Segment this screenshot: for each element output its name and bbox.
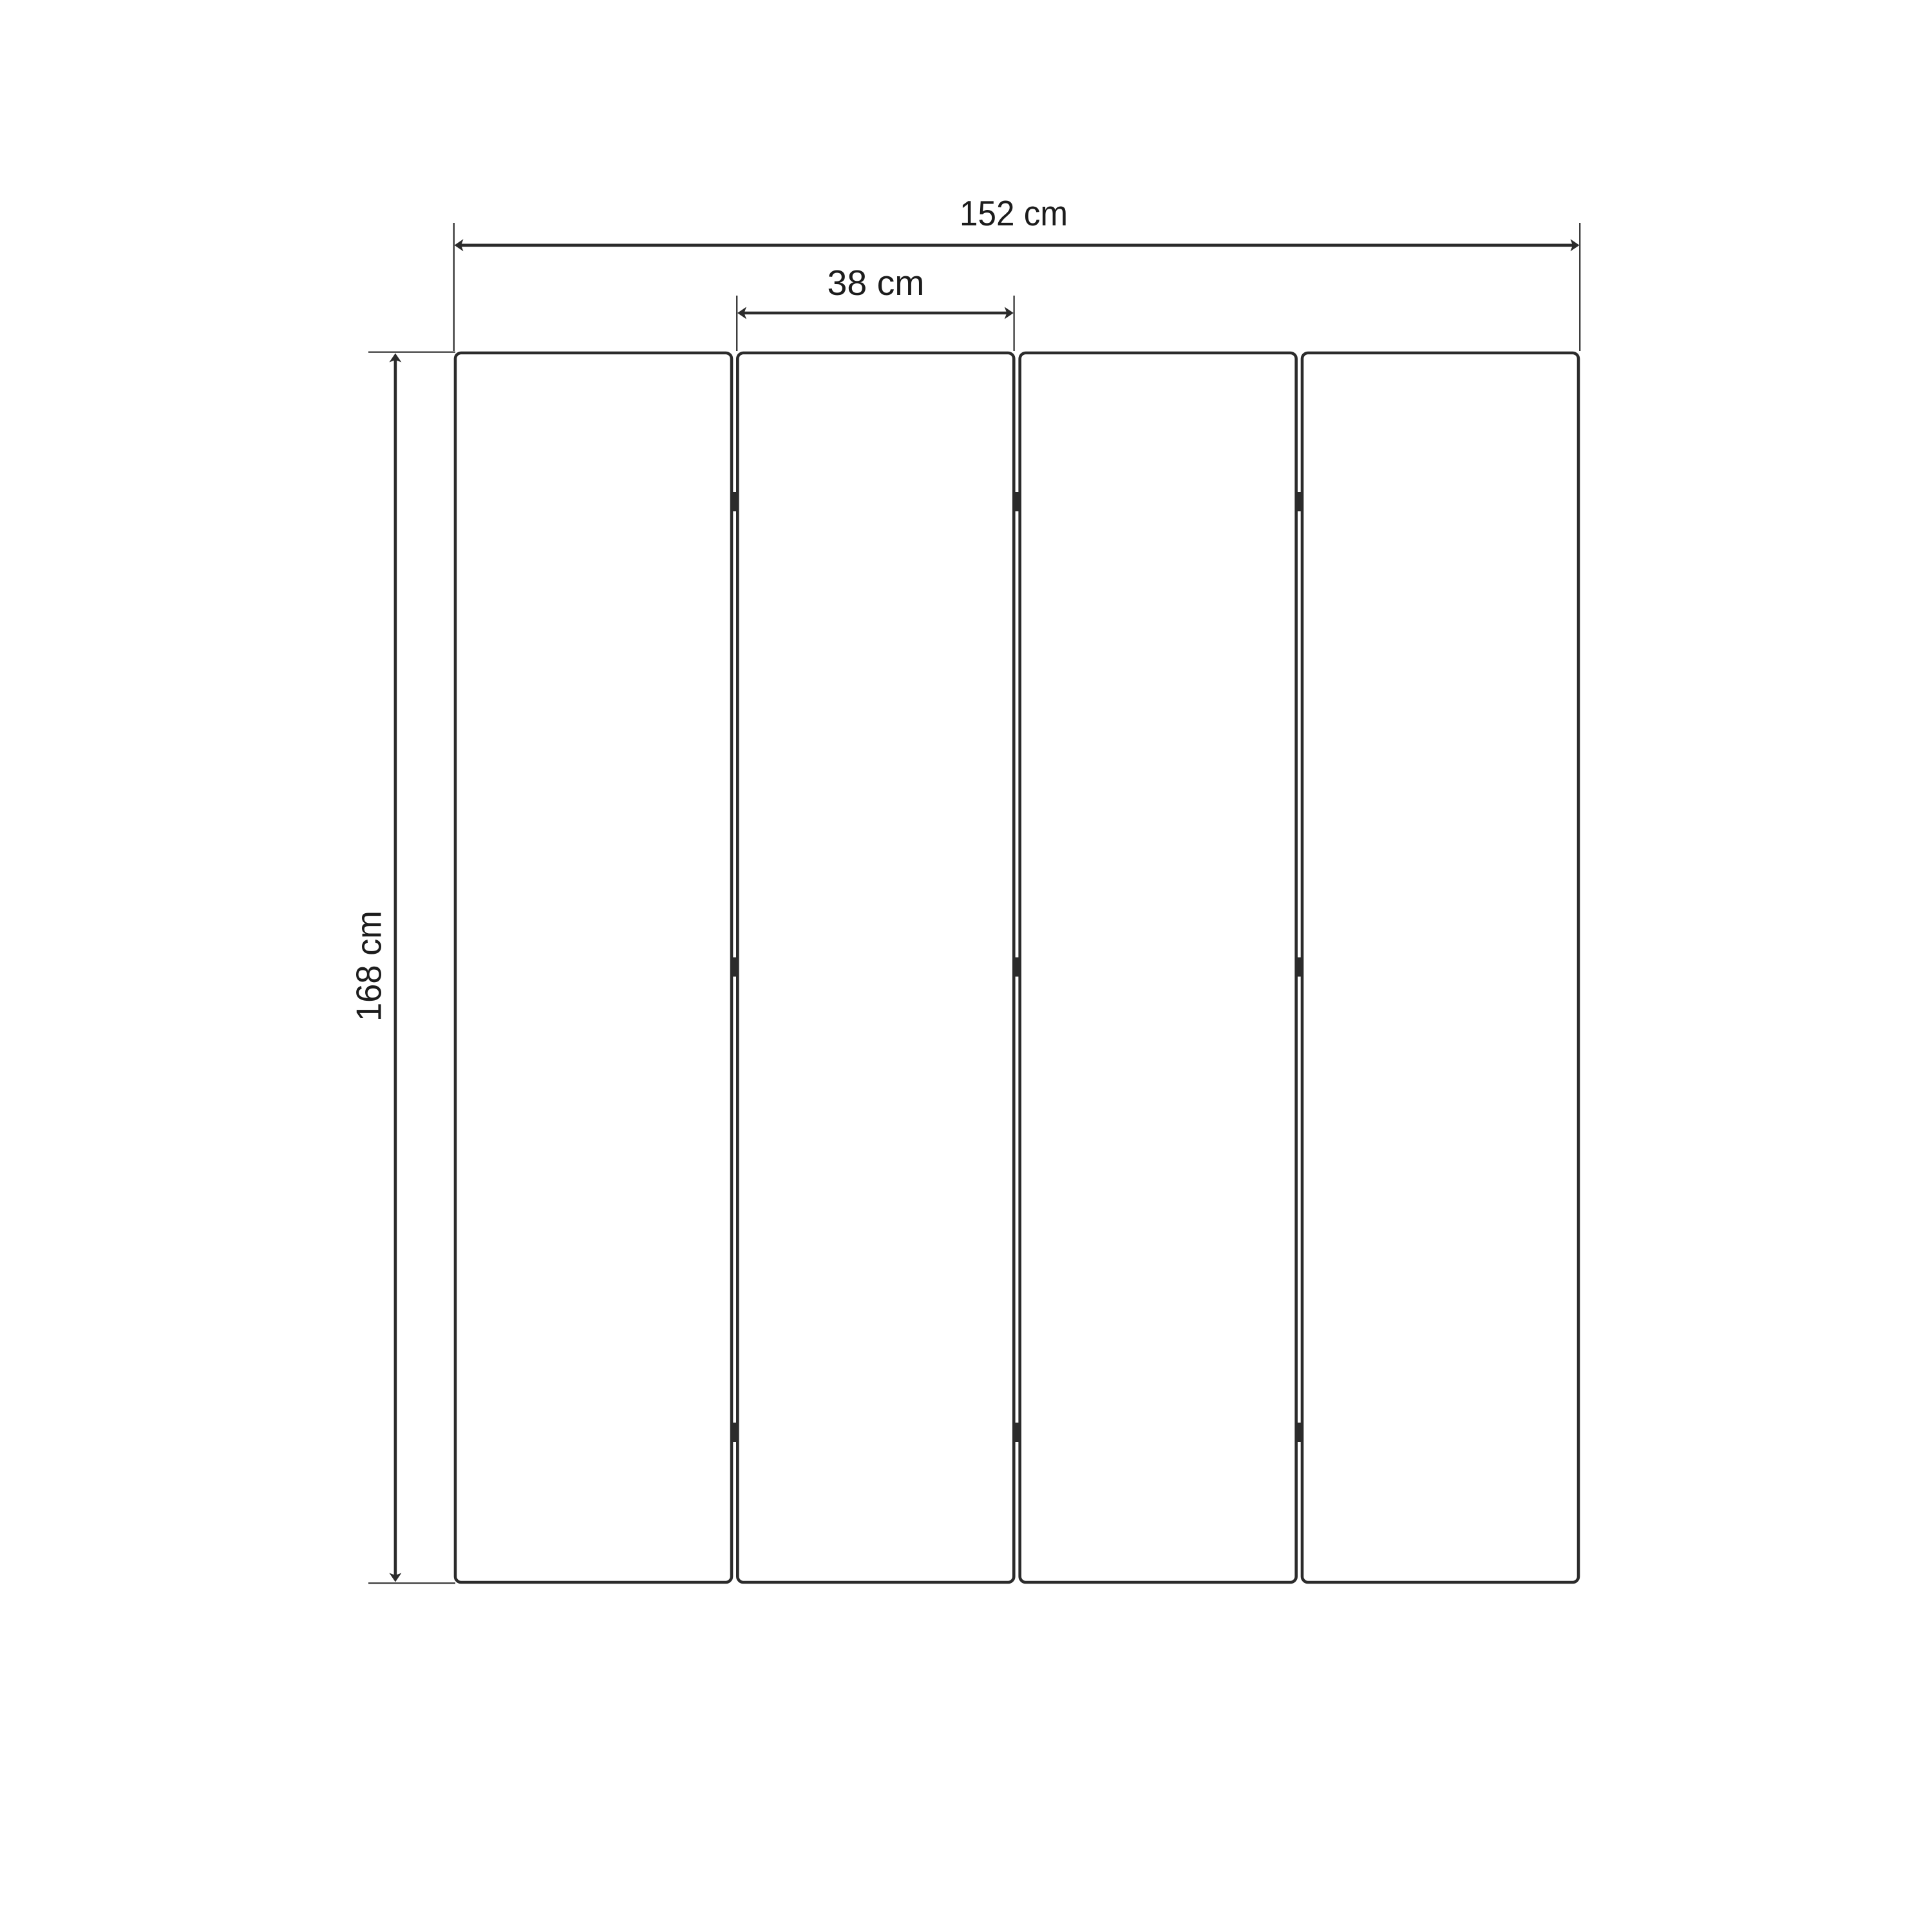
svg-text:152 cm: 152 cm (960, 193, 1068, 233)
svg-text:168 cm: 168 cm (349, 911, 389, 1021)
svg-text:38 cm: 38 cm (828, 263, 925, 303)
